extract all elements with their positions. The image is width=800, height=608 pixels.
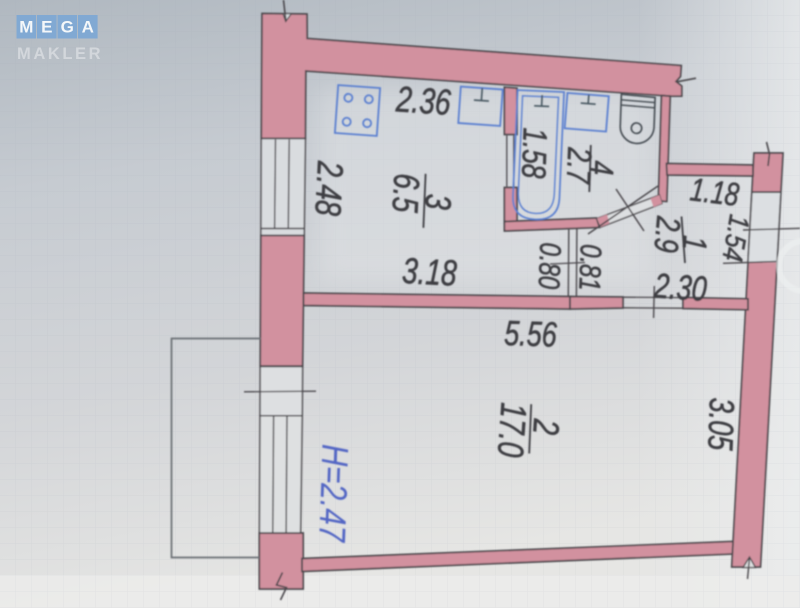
svg-text:3.18: 3.18 bbox=[401, 250, 458, 293]
svg-text:A: A bbox=[82, 18, 94, 37]
svg-text:H=2.47: H=2.47 bbox=[310, 444, 355, 544]
svg-text:2.30: 2.30 bbox=[652, 266, 709, 309]
svg-text:3.05: 3.05 bbox=[700, 397, 741, 451]
svg-text:2: 2 bbox=[525, 417, 566, 436]
svg-text:2.48: 2.48 bbox=[307, 159, 350, 216]
svg-text:1.18: 1.18 bbox=[688, 172, 741, 214]
svg-text:MAKLER: MAKLER bbox=[17, 45, 103, 63]
svg-text:5.56: 5.56 bbox=[504, 313, 558, 354]
svg-text:2.36: 2.36 bbox=[394, 79, 453, 123]
svg-text:0.80: 0.80 bbox=[532, 242, 568, 290]
svg-text:0.81: 0.81 bbox=[573, 244, 609, 292]
svg-text:G: G bbox=[61, 18, 74, 37]
svg-text:3: 3 bbox=[417, 193, 458, 211]
svg-text:M: M bbox=[19, 18, 33, 37]
svg-text:1.58: 1.58 bbox=[514, 127, 553, 179]
svg-text:1: 1 bbox=[675, 234, 713, 252]
svg-text:4: 4 bbox=[582, 160, 619, 176]
svg-text:E: E bbox=[41, 18, 52, 37]
